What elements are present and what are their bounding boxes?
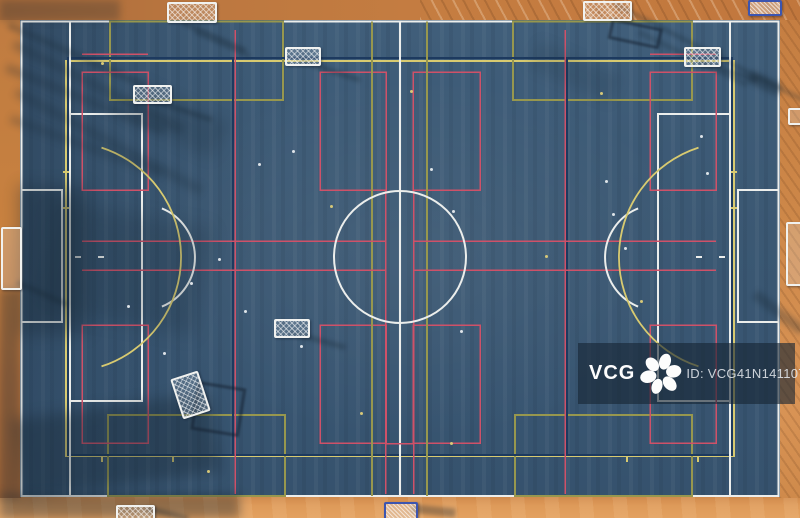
white-court-rect xyxy=(22,190,63,322)
red-court-rect xyxy=(82,325,148,443)
aerial-sports-court-photo: VCG ID: VCG41N1411075846 xyxy=(0,0,800,518)
white-penalty-arc xyxy=(162,208,195,306)
red-court-rect xyxy=(320,72,386,190)
red-court-rect xyxy=(82,72,148,190)
white-penalty-arc xyxy=(605,208,638,306)
white-court-rect xyxy=(738,190,779,322)
red-court-rect xyxy=(413,72,480,190)
vcg-pinwheel-icon xyxy=(637,350,685,398)
watermark-id-text: ID: VCG41N1411075846 xyxy=(686,366,800,381)
vcg-watermark: VCG ID: VCG41N1411075846 xyxy=(578,343,795,404)
red-court-rect xyxy=(413,325,480,443)
red-court-rect xyxy=(320,325,386,443)
red-court-rect xyxy=(650,72,716,190)
vcg-logo-text: VCG xyxy=(589,362,635,385)
field-markings xyxy=(0,0,800,518)
